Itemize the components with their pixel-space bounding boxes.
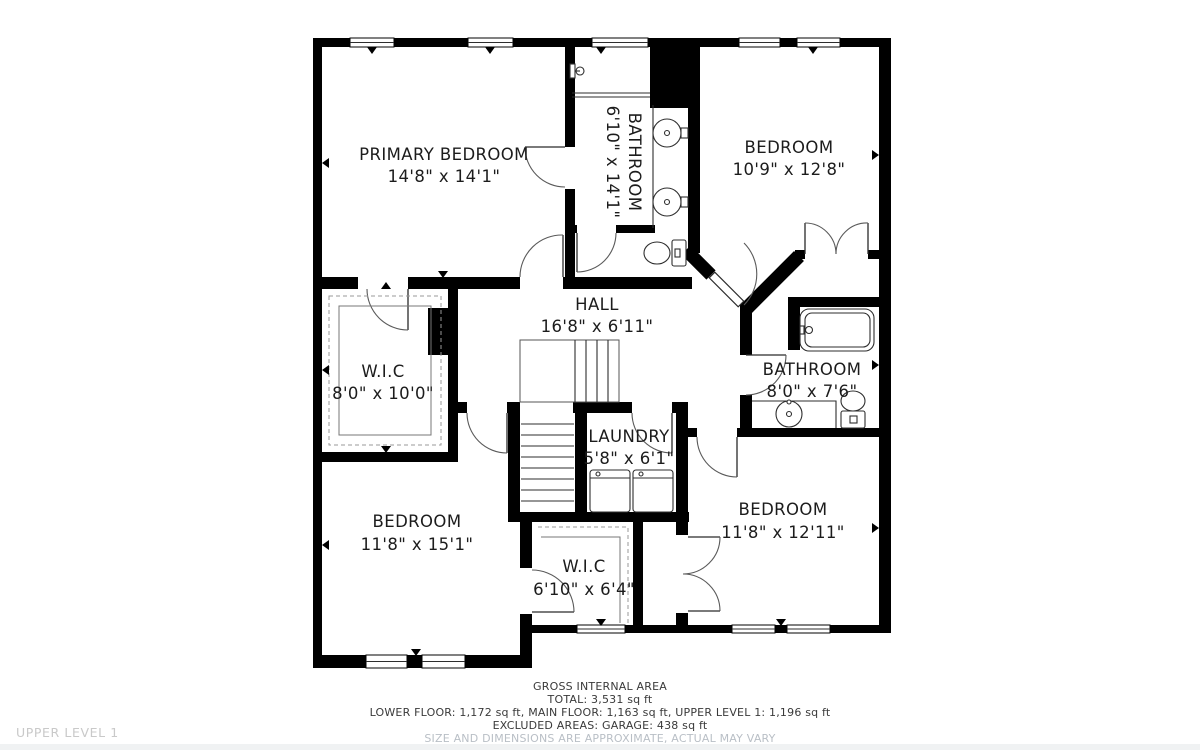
room-label-primary-bedroom: PRIMARY BEDROOM (359, 145, 529, 164)
toilet-icon (644, 240, 686, 266)
footer-total: TOTAL: 3,531 sq ft (547, 693, 653, 706)
laundry-fixtures (590, 470, 673, 512)
window-icon (577, 625, 625, 633)
door-icon (525, 147, 565, 187)
room-label-bathroom-ensuite-group: BATHROOM 6'10" x 14'1" (603, 106, 644, 219)
door-icon (520, 235, 563, 277)
room-dims-bathroom-right: 8'0" x 7'6" (767, 382, 858, 401)
room-label-bedroom-bottom-left: BEDROOM (373, 512, 462, 531)
room-dims-bathroom-ensuite: 6'10" x 14'1" (603, 106, 622, 219)
diagonal-door-icon (709, 243, 757, 307)
room-dims-bedroom-top-right: 10'9" x 12'8" (733, 160, 846, 179)
room-label-wic-bottom: W.I.C (562, 557, 605, 576)
door-icon (467, 413, 507, 453)
door-icon (577, 233, 616, 272)
shower-icon (570, 64, 584, 78)
door-icon (367, 289, 408, 330)
sink-icon (653, 119, 688, 147)
room-label-hall: HALL (575, 295, 619, 314)
room-dims-wic-left: 8'0" x 10'0" (332, 384, 434, 403)
double-door-icon (683, 537, 720, 611)
window-icon (350, 38, 394, 47)
footer-title: GROSS INTERNAL AREA (533, 680, 667, 693)
vanity-sink-icon (752, 400, 836, 428)
window-icon (366, 655, 407, 668)
room-dims-bedroom-bottom-right: 11'8" x 12'11" (721, 523, 845, 542)
footer-excluded: EXCLUDED AREAS: GARAGE: 438 sq ft (493, 719, 708, 732)
bottom-edge-bar (0, 744, 1200, 750)
room-label-bathroom-ensuite: BATHROOM (625, 113, 644, 212)
window-icon (797, 38, 840, 47)
washer-icon (590, 470, 630, 512)
room-label-bathroom-right: BATHROOM (763, 360, 862, 379)
room-dims-hall: 16'8" x 6'11" (541, 317, 654, 336)
room-label-laundry: LAUNDRY (588, 427, 670, 446)
room-dims-bedroom-bottom-left: 11'8" x 15'1" (361, 535, 474, 554)
floorplan-page: PRIMARY BEDROOM 14'8" x 14'1" BATHROOM 6… (0, 0, 1200, 750)
footer: GROSS INTERNAL AREA TOTAL: 3,531 sq ft L… (370, 680, 831, 745)
room-label-bedroom-top-right: BEDROOM (745, 138, 834, 157)
window-icon (787, 625, 830, 633)
window-icon (739, 38, 780, 47)
floor-level-label: UPPER LEVEL 1 (16, 725, 119, 740)
floorplan-drawing: PRIMARY BEDROOM 14'8" x 14'1" BATHROOM 6… (0, 0, 1200, 750)
window-icon (468, 38, 513, 47)
window-icon (592, 38, 648, 47)
dryer-icon (633, 470, 673, 512)
window-icon (422, 655, 465, 668)
room-dims-wic-bottom: 6'10" x 6'4" (533, 580, 635, 599)
footer-disclaimer: SIZE AND DIMENSIONS ARE APPROXIMATE, ACT… (424, 732, 775, 745)
sink-icon (653, 188, 688, 216)
room-dims-laundry: 5'8" x 6'1" (584, 449, 675, 468)
room-label-wic-left: W.I.C (361, 362, 404, 381)
window-icon (732, 625, 775, 633)
bathtub-icon (800, 309, 874, 351)
room-label-bedroom-bottom-right: BEDROOM (739, 500, 828, 519)
double-door-icon (805, 223, 868, 254)
door-icon (697, 437, 737, 477)
room-dims-primary-bedroom: 14'8" x 14'1" (388, 167, 501, 186)
footer-floors: LOWER FLOOR: 1,172 sq ft, MAIN FLOOR: 1,… (370, 706, 831, 719)
